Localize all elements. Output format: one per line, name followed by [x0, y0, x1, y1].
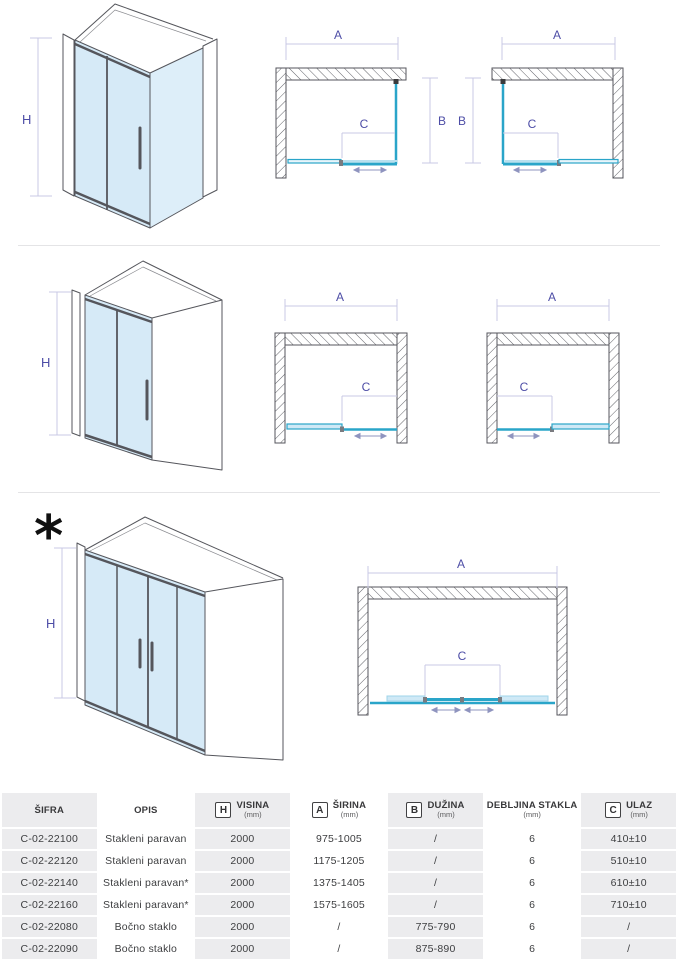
dimension-letter-badge: C [605, 802, 621, 818]
cell-visina: 2000 [195, 873, 290, 893]
cell-sifra: C-02-22100 [2, 829, 97, 849]
wall-left [358, 587, 368, 715]
roller-bracket [460, 697, 464, 703]
cell-ulaz: 710±10 [581, 895, 676, 915]
top-rim-inner [80, 10, 206, 42]
wall-right [557, 587, 567, 715]
wall-right [609, 333, 619, 443]
wall-top [487, 333, 619, 345]
cell-sirina: 975-1005 [292, 829, 387, 849]
cell-debljina: 6 [485, 895, 580, 915]
cell-debljina: 6 [485, 829, 580, 849]
cell-opis: Stakleni paravan [99, 829, 194, 849]
drawing-row-niche-enclosure: H A C [0, 245, 678, 492]
top-rim-inner [90, 267, 216, 301]
dimension-h-label: H [41, 355, 50, 370]
cell-ulaz: 510±10 [581, 851, 676, 871]
cell-visina: 2000 [195, 917, 290, 937]
table-row: C-02-22090 Bočno staklo 2000 / 875-890 6… [2, 939, 676, 959]
cell-sifra: C-02-22140 [2, 873, 97, 893]
cell-ulaz: / [581, 917, 676, 937]
dimension-a-label: A [336, 290, 344, 304]
col-header-sifra: ŠIFRA [2, 793, 97, 827]
cell-duzina: / [388, 895, 483, 915]
fixed-glass-plan [387, 696, 425, 701]
wall-left [276, 68, 286, 178]
roller-bracket [423, 697, 427, 703]
dimension-c-label: C [528, 117, 537, 131]
fixed-glass-plan [552, 424, 609, 429]
cell-visina: 2000 [195, 895, 290, 915]
wall-strip-left [77, 543, 85, 701]
dimension-h [49, 292, 71, 435]
slide-direction-arrow [354, 168, 386, 173]
dimension-a-label: A [553, 28, 561, 42]
glass-panel-side [150, 48, 203, 228]
table-header-row: ŠIFRA OPIS H VISINA(mm) A Š [2, 793, 676, 827]
dimension-h-label: H [46, 616, 55, 631]
side-face [152, 300, 222, 470]
cell-visina: 2000 [195, 829, 290, 849]
top-rim [75, 4, 213, 40]
cell-ulaz: 410±10 [581, 829, 676, 849]
cell-duzina: / [388, 851, 483, 871]
table-row: C-02-22100 Stakleni paravan 2000 975-100… [2, 829, 676, 849]
wall-top [492, 68, 623, 80]
plan-view-niche-right: A C [487, 290, 619, 443]
dimension-h [30, 38, 52, 196]
dimension-b [465, 78, 481, 163]
cell-duzina: 775-790 [388, 917, 483, 937]
catalog-page: H A B C [0, 0, 678, 965]
col-header-duzina: B DUŽINA(mm) [388, 793, 483, 827]
dimension-a-label: A [457, 557, 465, 571]
plan-view-wide: A C [358, 557, 567, 715]
col-unit: (mm) [427, 811, 464, 819]
roller-bracket [340, 427, 344, 433]
side-face [205, 579, 283, 760]
cell-sirina: 1575-1605 [292, 895, 387, 915]
wall-strip-left [72, 290, 80, 436]
dimension-c-label: C [458, 649, 467, 663]
plan-view-corner-left: A B C [276, 28, 446, 178]
slide-direction-arrow [355, 434, 386, 439]
col-header-sirina: A ŠIRINA(mm) [292, 793, 387, 827]
col-header-visina: H VISINA(mm) [195, 793, 290, 827]
col-unit: (mm) [487, 811, 578, 819]
drawing-row-corner-enclosure: H A B C [0, 0, 678, 245]
cell-debljina: 6 [485, 851, 580, 871]
col-unit: (mm) [236, 811, 269, 819]
cell-duzina: / [388, 829, 483, 849]
cell-ulaz: / [581, 939, 676, 959]
dimension-a-label: A [548, 290, 556, 304]
drawing-row-wide-enclosure: * H [0, 492, 678, 765]
table-row: C-02-22140 Stakleni paravan* 2000 1375-1… [2, 873, 676, 893]
wall-top [358, 587, 567, 599]
plan-view-niche-left: A C [275, 290, 407, 443]
fixed-glass-plan [500, 696, 548, 701]
slide-direction-arrow-right [465, 708, 493, 713]
fixed-glass-plan [287, 424, 342, 429]
dimension-letter-badge: A [312, 802, 328, 818]
cell-opis: Stakleni paravan* [99, 873, 194, 893]
slide-direction-arrow [514, 168, 546, 173]
cell-sirina: 1175-1205 [292, 851, 387, 871]
slide-direction-arrow [508, 434, 539, 439]
cell-duzina: 875-890 [388, 939, 483, 959]
cell-debljina: 6 [485, 939, 580, 959]
cell-sirina: / [292, 917, 387, 937]
fixed-glass-plan [559, 160, 618, 164]
dimension-b-label: B [438, 114, 446, 128]
spec-table-section: ŠIFRA OPIS H VISINA(mm) A Š [0, 791, 678, 961]
spec-table: ŠIFRA OPIS H VISINA(mm) A Š [0, 791, 678, 961]
dimension-c [342, 396, 397, 421]
cell-opis: Stakleni paravan [99, 851, 194, 871]
col-unit: (mm) [626, 811, 652, 819]
col-title: ŠIFRA [35, 805, 65, 816]
col-title: OPIS [134, 805, 158, 816]
wall-profile-dot [394, 79, 399, 84]
cell-duzina: / [388, 873, 483, 893]
table-row: C-02-22120 Stakleni paravan 2000 1175-12… [2, 851, 676, 871]
cell-sifra: C-02-22080 [2, 917, 97, 937]
col-unit: (mm) [333, 811, 366, 819]
col-header-ulaz: C ULAZ(mm) [581, 793, 676, 827]
wall-top [276, 68, 406, 80]
dimension-c-label: C [360, 117, 369, 131]
wall-profile-dot [501, 79, 506, 84]
dimension-c [497, 396, 552, 421]
slide-direction-arrow-left [432, 708, 460, 713]
dimension-b [422, 78, 438, 163]
dimension-c [342, 133, 395, 158]
wall-strip-right [203, 39, 217, 197]
wall-left [275, 333, 285, 443]
table-row: C-02-22080 Bočno staklo 2000 / 775-790 6… [2, 917, 676, 937]
wall-top [275, 333, 407, 345]
cell-sirina: / [292, 939, 387, 959]
wall-right [397, 333, 407, 443]
cell-visina: 2000 [195, 939, 290, 959]
isometric-view-corner-shower: H [22, 4, 217, 228]
cell-ulaz: 610±10 [581, 873, 676, 893]
cell-sifra: C-02-22090 [2, 939, 97, 959]
fixed-glass-plan [288, 160, 341, 164]
col-header-opis: OPIS [99, 793, 194, 827]
plan-view-corner-right: A B C [458, 28, 623, 178]
table-row: C-02-22160 Stakleni paravan* 2000 1575-1… [2, 895, 676, 915]
dimension-h [54, 548, 76, 698]
wall-left [487, 333, 497, 443]
cell-opis: Bočno staklo [99, 917, 194, 937]
dimension-h-label: H [22, 112, 31, 127]
roller-bracket [498, 697, 502, 703]
cell-debljina: 6 [485, 873, 580, 893]
dimension-letter-badge: H [215, 802, 231, 818]
glass-panel-front [85, 550, 205, 755]
footnote-asterisk: * [34, 504, 63, 569]
dimension-c [425, 665, 500, 697]
dimension-c-label: C [520, 380, 529, 394]
dimension-b-label: B [458, 114, 466, 128]
dimension-letter-badge: B [406, 802, 422, 818]
cell-sirina: 1375-1405 [292, 873, 387, 893]
cell-sifra: C-02-22160 [2, 895, 97, 915]
col-header-debljina-stakla: DEBLJINA STAKLA(mm) [485, 793, 580, 827]
isometric-view-niche-shower: H [41, 261, 222, 470]
cell-opis: Bočno staklo [99, 939, 194, 959]
roller-bracket [339, 160, 343, 166]
cell-debljina: 6 [485, 917, 580, 937]
isometric-view-wide-shower: H [46, 517, 283, 760]
wall-strip-left [63, 34, 74, 196]
dimension-c [503, 133, 558, 158]
cell-visina: 2000 [195, 851, 290, 871]
cell-sifra: C-02-22120 [2, 851, 97, 871]
cell-opis: Stakleni paravan* [99, 895, 194, 915]
dimension-c-label: C [362, 380, 371, 394]
dimension-a-label: A [334, 28, 342, 42]
